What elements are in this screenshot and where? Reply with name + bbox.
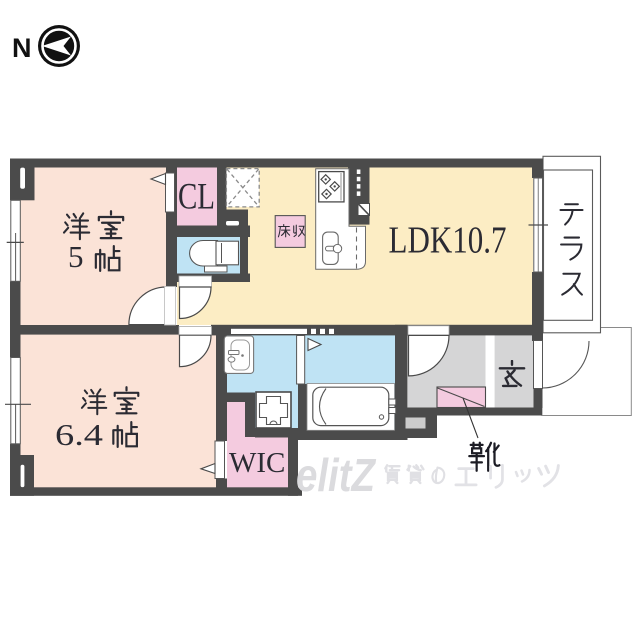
svg-text:CL: CL: [178, 177, 215, 218]
svg-text:5: 5: [68, 239, 84, 274]
svg-text:N: N: [12, 33, 32, 63]
svg-text:WIC: WIC: [229, 447, 285, 479]
svg-text:LDK10.7: LDK10.7: [389, 220, 507, 262]
svg-text:6.4: 6.4: [55, 417, 104, 452]
svg-text:elitZ: elitZ: [296, 449, 377, 501]
